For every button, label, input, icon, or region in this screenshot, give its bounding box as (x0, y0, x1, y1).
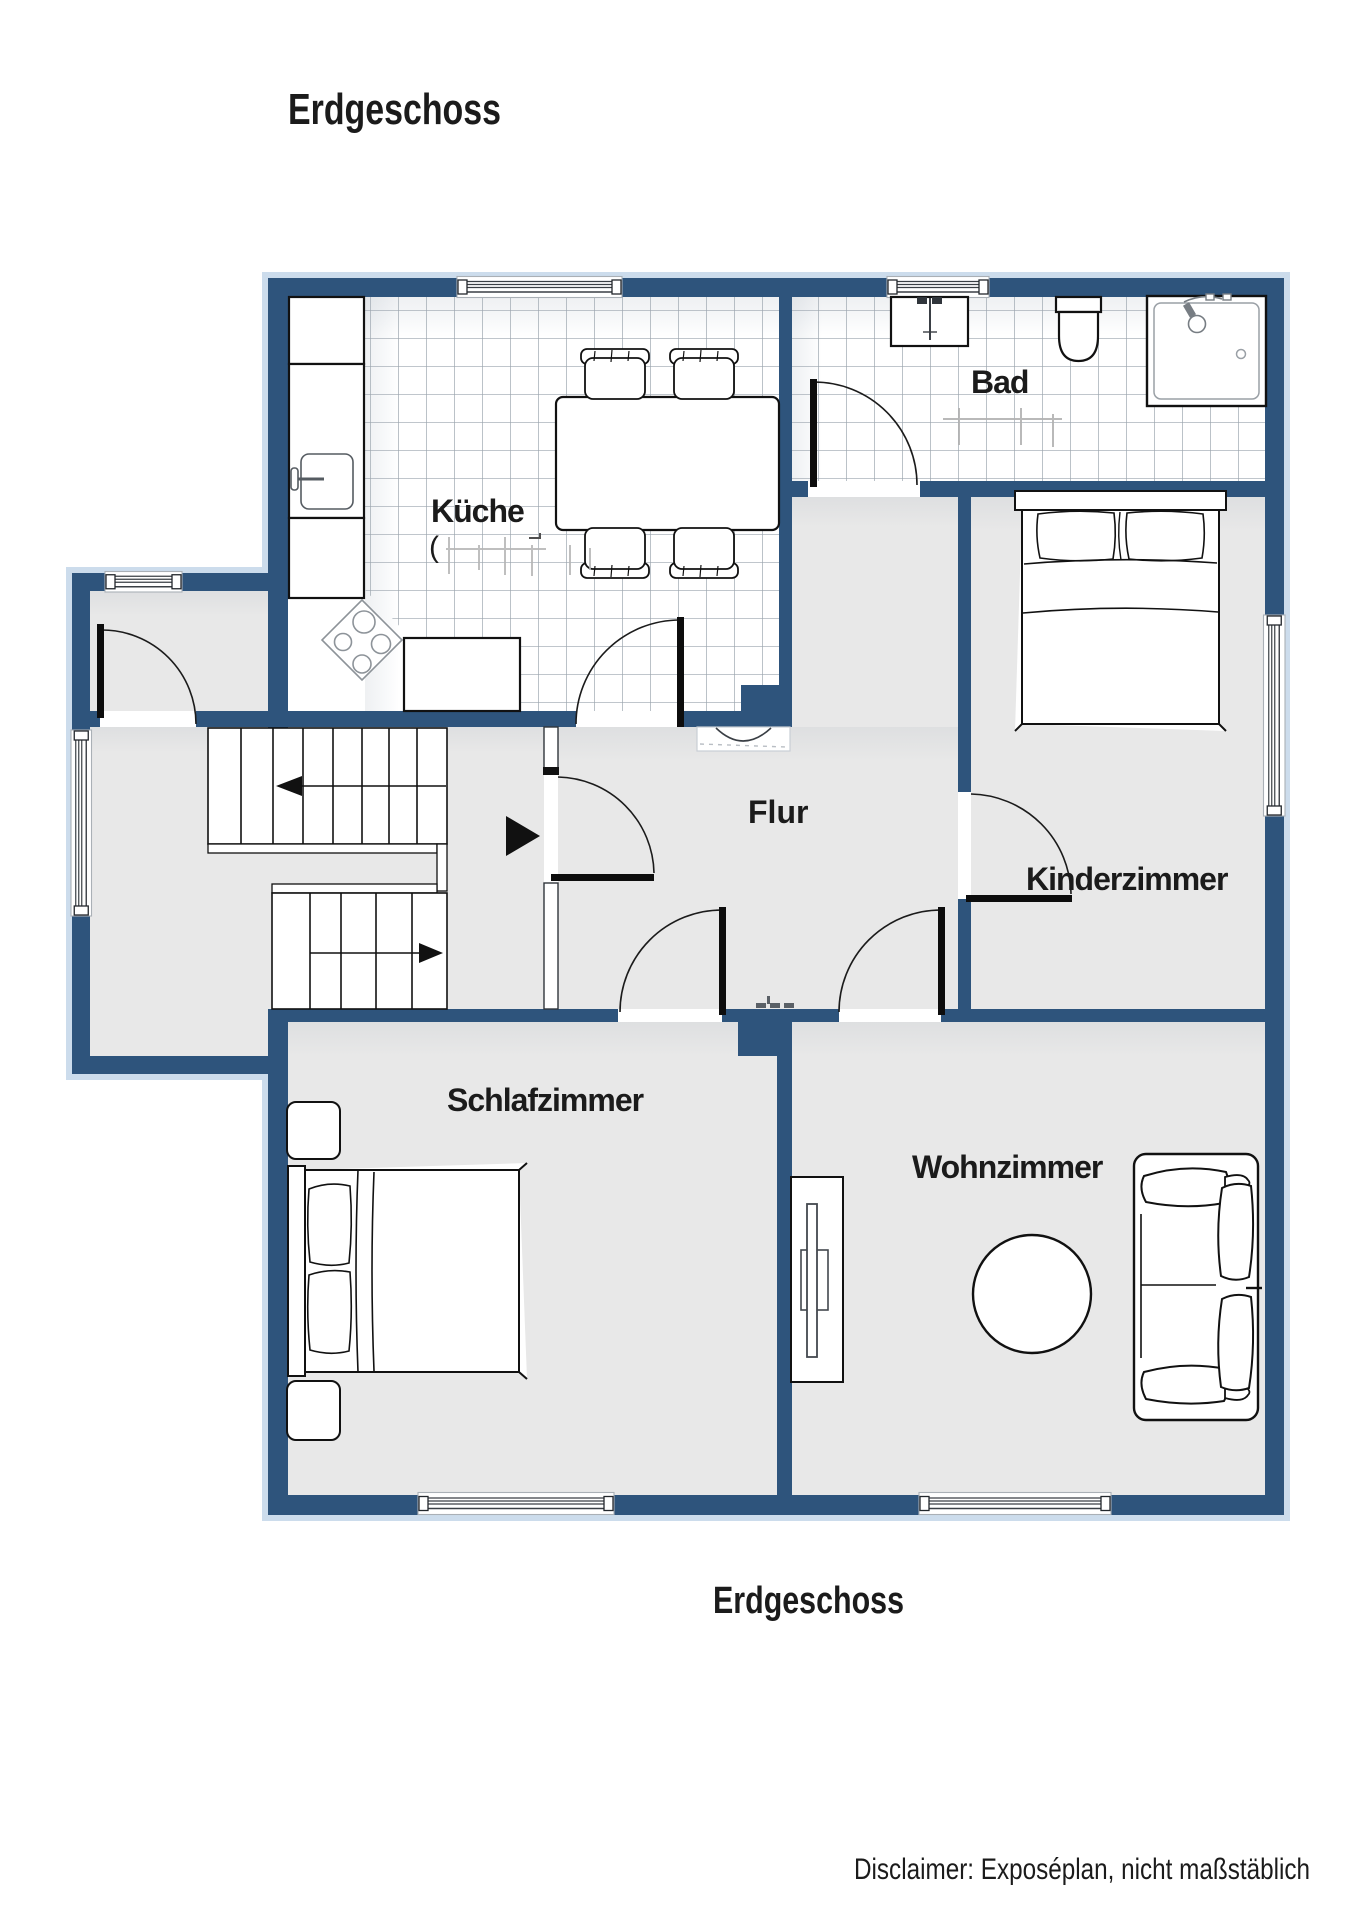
svg-text:Disclaimer: Exposéplan, nicht: Disclaimer: Exposéplan, nicht maßstäblic… (854, 1853, 1310, 1886)
svg-text:Erdgeschoss: Erdgeschoss (713, 1580, 904, 1622)
svg-text:Bad: Bad (971, 364, 1028, 400)
svg-text:Schlafzimmer: Schlafzimmer (447, 1082, 644, 1118)
svg-text:Küche: Küche (431, 493, 524, 529)
svg-text:Erdgeschoss: Erdgeschoss (288, 85, 501, 134)
svg-text:Flur: Flur (748, 794, 808, 830)
svg-text:Wohnzimmer: Wohnzimmer (912, 1149, 1103, 1185)
svg-text:Kinderzimmer: Kinderzimmer (1026, 861, 1228, 897)
svg-text:(: ( (429, 531, 439, 564)
